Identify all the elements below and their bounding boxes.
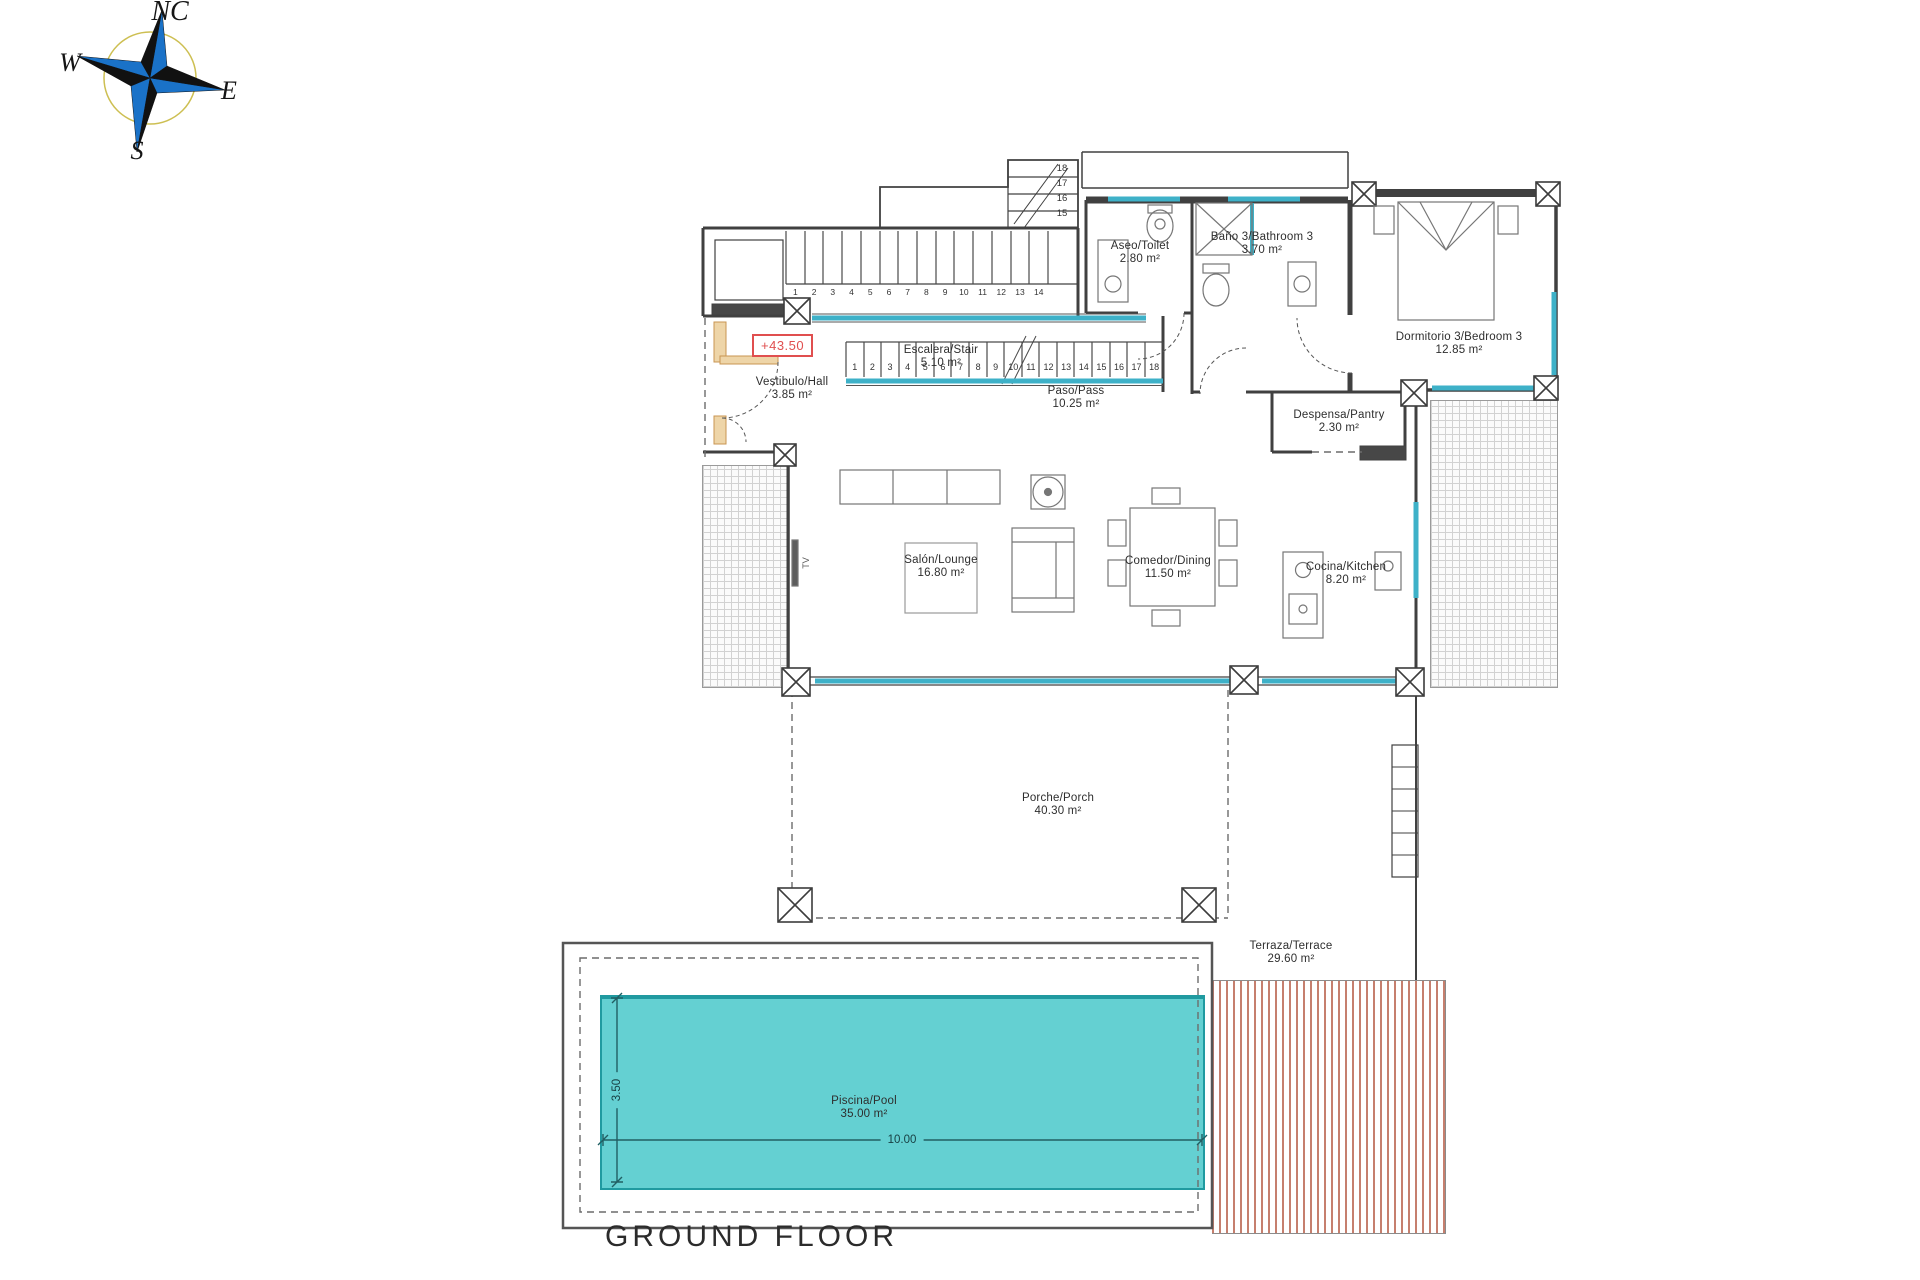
room-label-dining: Comedor/Dining11.50 m²: [1125, 555, 1211, 581]
stair-tread-number: 7: [898, 288, 917, 299]
room-label-kitchen: Cocina/Kitchen8.20 m²: [1306, 561, 1386, 587]
stair-tread-number: 13: [1057, 363, 1075, 375]
stair-tread-number: 3: [881, 363, 899, 375]
stair-tread-number: 1: [786, 288, 805, 299]
stair-tread-number: 16: [1110, 363, 1128, 375]
stair-turn-numbers: 18171615: [1050, 164, 1074, 224]
floor-plan-canvas: NC W E S +43.50 1234567891011121314 1817…: [0, 0, 1920, 1280]
stair-tread-number: 14: [1075, 363, 1093, 375]
stair-tread-number: 12: [992, 288, 1011, 299]
stair-tread-number: 11: [1022, 363, 1040, 375]
stair-tread-number: 14: [1029, 288, 1048, 299]
room-label-stair: Escalera/Stair5.10 m²: [904, 344, 978, 370]
stair-lower-run-numbers: 123456789101112131415161718: [846, 363, 1163, 375]
compass-south-label: S: [131, 136, 144, 166]
room-label-pass: Paso/Pass10.25 m²: [1048, 385, 1105, 411]
stair-upper-run-numbers: 1234567891011121314: [786, 288, 1048, 299]
compass-east-label: E: [221, 76, 237, 106]
stair-tread-number: 2: [864, 363, 882, 375]
stair-tread-number: 1: [846, 363, 864, 375]
room-label-terrace: Terraza/Terrace29.60 m²: [1250, 940, 1333, 966]
stair-tread-number: 3: [823, 288, 842, 299]
stair-tread-number: 18: [1050, 164, 1074, 179]
compass-icon: [77, 10, 225, 152]
pool-length-dimension: 10.00: [881, 1134, 924, 1146]
stair-tread-number: 10: [954, 288, 973, 299]
stair-tread-number: 11: [973, 288, 992, 299]
room-label-bedroom3: Dormitorio 3/Bedroom 312.85 m²: [1396, 331, 1522, 357]
stair-tread-number: 17: [1128, 363, 1146, 375]
stair-tread-number: 10: [1004, 363, 1022, 375]
stair-tread-number: 9: [936, 288, 955, 299]
room-label-toilet: Aseo/Toilet2.80 m²: [1111, 240, 1169, 266]
room-label-pool: Piscina/Pool35.00 m²: [831, 1095, 897, 1121]
stair-tread-number: 15: [1050, 209, 1074, 224]
room-label-pantry: Despensa/Pantry2.30 m²: [1293, 409, 1384, 435]
hatched-terrace-right: [1430, 400, 1558, 688]
stair-tread-number: 16: [1050, 194, 1074, 209]
stair-tread-number: 18: [1145, 363, 1163, 375]
stair-tread-number: 9: [987, 363, 1005, 375]
stair-tread-number: 4: [842, 288, 861, 299]
page-title: GROUND FLOOR: [605, 1220, 898, 1254]
compass-north-label: NC: [151, 0, 188, 28]
tv-label: TV: [801, 557, 811, 569]
room-label-hall: Vestibulo/Hall3.85 m²: [756, 376, 828, 402]
striped-deck: [1212, 980, 1446, 1234]
stair-tread-number: 2: [805, 288, 824, 299]
compass-west-label: W: [59, 48, 81, 78]
stair-tread-number: 17: [1050, 179, 1074, 194]
pool-water: [600, 995, 1205, 1190]
room-label-porch: Porche/Porch40.30 m²: [1022, 792, 1094, 818]
stair-tread-number: 8: [917, 288, 936, 299]
elevation-marker: +43.50: [752, 334, 813, 357]
stair-tread-number: 12: [1040, 363, 1058, 375]
pool-width-dimension: 3.50: [611, 1072, 623, 1108]
stair-tread-number: 15: [1093, 363, 1111, 375]
stair-tread-number: 13: [1011, 288, 1030, 299]
stair-tread-number: 5: [861, 288, 880, 299]
room-label-bathroom3: Baño 3/Bathroom 33.70 m²: [1211, 231, 1314, 257]
room-label-lounge: Salón/Lounge16.80 m²: [904, 554, 977, 580]
stair-tread-number: 6: [880, 288, 899, 299]
hatched-terrace-left: [702, 465, 790, 688]
